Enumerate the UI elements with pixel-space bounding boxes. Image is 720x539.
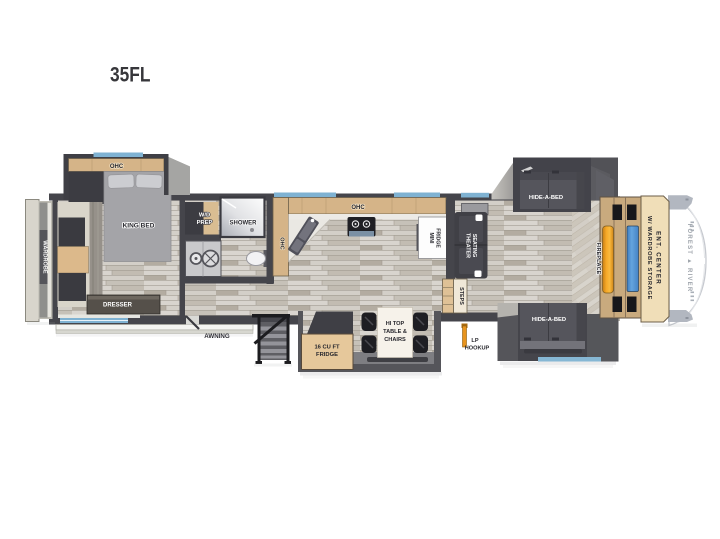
svg-text:FIREPLACE: FIREPLACE	[595, 243, 601, 275]
svg-text:OHC: OHC	[110, 164, 124, 170]
svg-text:OHC: OHC	[279, 237, 285, 249]
svg-text:TABLE &: TABLE &	[383, 329, 407, 335]
svg-text:LP: LP	[471, 338, 478, 344]
svg-text:THEATER: THEATER	[465, 233, 471, 258]
svg-text:MINI: MINI	[428, 233, 434, 245]
svg-text:STEPS: STEPS	[458, 287, 464, 305]
svg-text:SEATING: SEATING	[471, 234, 477, 258]
svg-text:SHOWER: SHOWER	[230, 221, 258, 227]
svg-text:35FL: 35FL	[110, 63, 151, 87]
svg-text:OHC: OHC	[351, 205, 365, 211]
svg-text:16 CU FT: 16 CU FT	[314, 345, 340, 351]
svg-text:W/ WARDROBE STORAGE: W/ WARDROBE STORAGE	[646, 216, 652, 300]
svg-text:HIDE-A-BED: HIDE-A-BED	[532, 317, 566, 323]
svg-text:CHAIRS: CHAIRS	[384, 337, 406, 343]
svg-text:KING BED: KING BED	[123, 223, 155, 230]
svg-text:FRIDGE: FRIDGE	[435, 228, 441, 248]
svg-text:HI TOP: HI TOP	[386, 321, 405, 327]
svg-text:ENT. CENTER: ENT. CENTER	[655, 231, 662, 285]
svg-text:WARDROBE: WARDROBE	[42, 240, 48, 274]
svg-text:FOREST ▲ RIVER: FOREST ▲ RIVER	[686, 224, 692, 293]
svg-text:W/D: W/D	[199, 213, 210, 219]
svg-text:PREP: PREP	[197, 220, 213, 226]
svg-text:HOOKUP: HOOKUP	[465, 346, 490, 352]
svg-text:FRIDGE: FRIDGE	[316, 352, 338, 358]
svg-text:HIDE-A-BED: HIDE-A-BED	[529, 195, 563, 201]
svg-text:DRESSER: DRESSER	[103, 303, 133, 309]
